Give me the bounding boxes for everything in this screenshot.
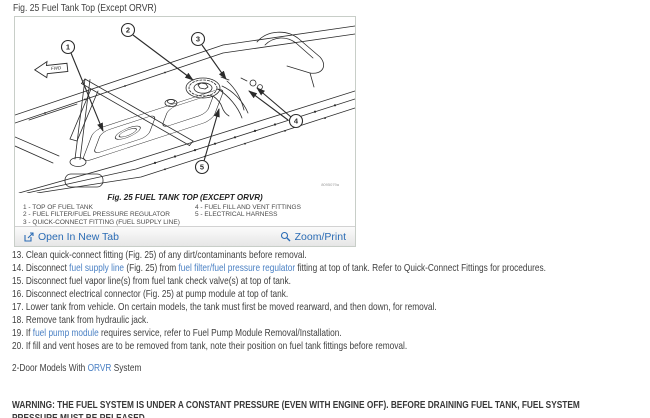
legend-item: 2 - FUEL FILTER/FUEL PRESSURE REGULATOR: [23, 211, 195, 218]
step-number: 19.: [12, 327, 26, 339]
step-number: 16.: [12, 288, 26, 300]
step-number: 14.: [12, 262, 26, 274]
procedure-step: 14. Disconnect fuel supply line (Fig. 25…: [12, 262, 640, 275]
figure-legend: 1 - TOP OF FUEL TANK2 - FUEL FILTER/FUEL…: [15, 203, 355, 226]
inline-link[interactable]: fuel filter/fuel pressure regulator: [178, 262, 295, 274]
text-run: Disconnect: [26, 262, 69, 274]
figure-card: FWD 8095079a 1: [14, 16, 356, 247]
figure-drawing: FWD 8095079a 1: [15, 17, 355, 193]
legend-item: 1 - TOP OF FUEL TANK: [23, 204, 195, 211]
figure-watermark: 8095079a: [321, 182, 340, 187]
svg-text:1: 1: [66, 43, 70, 52]
zoom-print-button[interactable]: Zoom/Print: [280, 231, 346, 243]
procedure-step: 15. Disconnect fuel vapor line(s) from f…: [12, 275, 640, 288]
magnifier-icon: [280, 231, 291, 242]
step-number: 18.: [12, 314, 26, 326]
manual-page: Fig. 25 Fuel Tank Top (Except ORVR): [0, 0, 650, 418]
callout-5: 5: [196, 161, 209, 174]
text-run: Clean quick-connect fitting (Fig. 25) of…: [26, 249, 307, 261]
step-number: 15.: [12, 275, 26, 287]
legend-item: 3 - QUICK-CONNECT FITTING (FUEL SUPPLY L…: [23, 219, 195, 226]
text-run: (Fig. 25) from: [124, 262, 178, 274]
svg-text:2: 2: [126, 26, 130, 35]
fuel-tank-diagram: FWD 8095079a 1: [15, 17, 355, 193]
legend-column-left: 1 - TOP OF FUEL TANK2 - FUEL FILTER/FUEL…: [23, 204, 195, 224]
text-run: Disconnect electrical connector (Fig. 25…: [26, 288, 288, 300]
step-number: 20.: [12, 340, 26, 352]
legend-column-right: 4 - FUEL FILL AND VENT FITTINGS5 - ELECT…: [195, 204, 347, 224]
procedure-step: 17. Lower tank from vehicle. On certain …: [12, 301, 640, 314]
procedure-step: 19. If fuel pump module requires service…: [12, 327, 640, 340]
callout-4: 4: [290, 115, 303, 128]
legend-item: 4 - FUEL FILL AND VENT FITTINGS: [195, 204, 347, 211]
figure-caption: Fig. 25 FUEL TANK TOP (EXCEPT ORVR): [15, 193, 355, 203]
text-run: requires service, refer to Fuel Pump Mod…: [99, 327, 342, 339]
text-run: fitting at top of tank. Refer to Quick-C…: [295, 262, 546, 274]
procedure-step: 13. Clean quick-connect fitting (Fig. 25…: [12, 249, 640, 262]
text-run: If fill and vent hoses are to be removed…: [26, 340, 407, 352]
section-subheading: 2-Door Models With ORVR System: [12, 362, 640, 375]
procedure-step: 16. Disconnect electrical connector (Fig…: [12, 288, 640, 301]
warning-text: WARNING: THE FUEL SYSTEM IS UNDER A CONS…: [12, 399, 622, 418]
text-run: Disconnect fuel vapor line(s) from fuel …: [26, 275, 291, 287]
step-number: 17.: [12, 301, 26, 313]
callout-2: 2: [122, 24, 135, 37]
procedure-step: 20. If fill and vent hoses are to be rem…: [12, 340, 640, 353]
fwd-arrow-icon: FWD: [34, 59, 69, 80]
text-run: 2-Door Models With: [12, 362, 88, 374]
step-number: 13.: [12, 249, 26, 261]
legend-item: 5 - ELECTRICAL HARNESS: [195, 211, 347, 218]
procedure-steps: 13. Clean quick-connect fitting (Fig. 25…: [12, 249, 640, 375]
text-run: System: [111, 362, 141, 374]
inline-link[interactable]: ORVR: [88, 362, 112, 374]
callout-labels: 1 2 3 4 5: [62, 24, 303, 174]
inline-link[interactable]: fuel pump module: [33, 327, 99, 339]
callout-1: 1: [62, 41, 75, 54]
text-run: Remove tank from hydraulic jack.: [26, 314, 149, 326]
open-in-new-tab-icon: [24, 232, 34, 242]
fwd-label: FWD: [51, 65, 62, 71]
procedure-step: 18. Remove tank from hydraulic jack.: [12, 314, 640, 327]
zoom-print-label: Zoom/Print: [295, 231, 346, 243]
text-run: Lower tank from vehicle. On certain mode…: [26, 301, 437, 313]
inline-link[interactable]: fuel supply line: [69, 262, 124, 274]
figure-toolbar: Open In New Tab Zoom/Print: [15, 226, 355, 246]
svg-text:5: 5: [200, 163, 204, 172]
svg-text:3: 3: [196, 35, 200, 44]
figure-page-title: Fig. 25 Fuel Tank Top (Except ORVR): [13, 2, 357, 14]
open-in-new-tab-button[interactable]: Open In New Tab: [24, 231, 119, 243]
callout-arrows: [71, 35, 291, 161]
callout-3: 3: [192, 33, 205, 46]
open-in-new-tab-label: Open In New Tab: [38, 231, 119, 243]
